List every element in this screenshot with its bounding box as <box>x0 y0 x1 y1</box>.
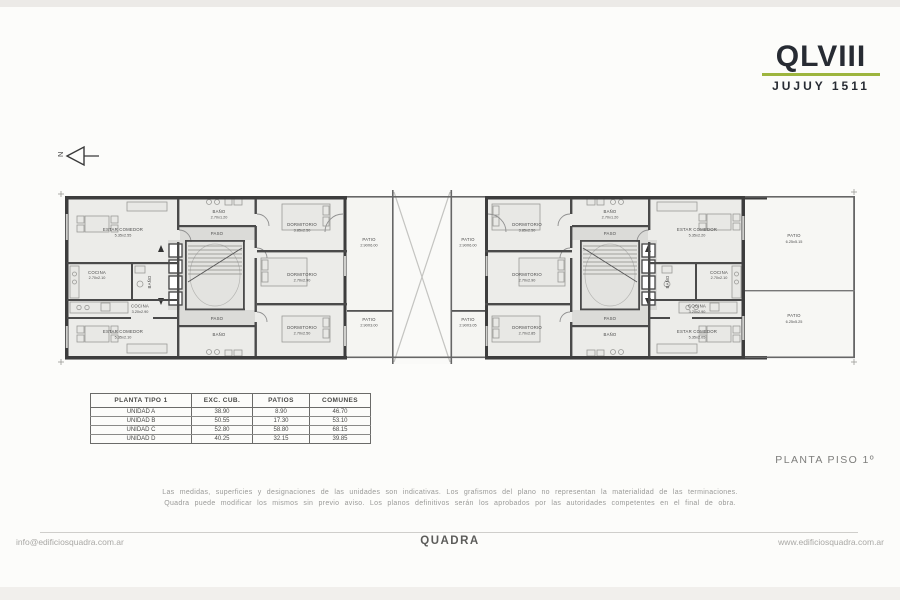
disclaimer: Las medidas, superficies y designaciones… <box>0 488 900 509</box>
room-dims: 3.85x2.50 <box>294 229 311 233</box>
patio-dims: 2.90X6.00 <box>360 244 377 248</box>
floor-plan-drawing: ESTAR COMEDOR 5.35x2.55 COCINA 2.70x2.10… <box>57 186 857 366</box>
table-row: UNIDAD C 52.80 58.80 68.15 <box>91 426 371 435</box>
table-row: UNIDAD A 38.90 8.90 46.70 <box>91 408 371 417</box>
unit-exc: 40.25 <box>192 435 253 444</box>
room-dims: 3.20x2.90 <box>132 310 149 314</box>
north-arrow: N <box>52 136 104 181</box>
table-header-comunes: COMUNES <box>310 394 371 408</box>
room-label-paso: PASO <box>604 231 617 236</box>
room-label-banio: BAÑO <box>213 209 226 214</box>
room-dims: 5.35x2.05 <box>689 336 706 340</box>
unit-patios: 32.15 <box>253 435 310 444</box>
unit-label: UNIDAD B <box>91 417 192 426</box>
unit-patios: 58.80 <box>253 426 310 435</box>
table-header-exc-cub: EXC. CUB. <box>192 394 253 408</box>
room-label-paso: PASO <box>211 231 224 236</box>
patio-dims: 6.25x5.25 <box>786 320 803 324</box>
room-dims: 2.70x2.50 <box>294 332 311 336</box>
room-label-paso: PASO <box>211 316 224 321</box>
room-dims: 5.35x2.55 <box>115 234 132 238</box>
unit-exc: 52.80 <box>192 426 253 435</box>
patio-dims: 6.25x5.15 <box>786 240 803 244</box>
logo-name: QLVIII <box>760 42 882 72</box>
north-label: N <box>56 152 65 157</box>
unit-exc: 38.90 <box>192 408 253 417</box>
logo: QLVIII JUJUY 1511 <box>760 42 882 93</box>
unit-patios: 8.90 <box>253 408 310 417</box>
patio-dims: 2.90X6.00 <box>459 244 476 248</box>
room-dims: 2.70x2.10 <box>89 276 106 280</box>
room-dims: 2.70x1.20 <box>602 216 619 220</box>
logo-subtitle: JUJUY 1511 <box>760 79 882 93</box>
north-arrow-icon: N <box>52 136 104 176</box>
room-dims: 2.70x2.90 <box>519 279 536 283</box>
room-label-banio: BAÑO <box>665 275 670 288</box>
room-label-dormitorio: DORMITORIO <box>287 222 317 227</box>
logo-underline <box>762 73 880 76</box>
patio-label: PATIO <box>787 233 801 238</box>
room-label-paso: PASO <box>604 316 617 321</box>
table-header-patios: PATIOS <box>253 394 310 408</box>
room-dims: 2.70x2.10 <box>711 276 728 280</box>
room-label-estar-comedor: ESTAR COMEDOR <box>677 329 717 334</box>
room-label-cocina: COCINA <box>131 304 149 309</box>
room-label-cocina: COCINA <box>88 270 106 275</box>
room-label-dormitorio: DORMITORIO <box>512 272 542 277</box>
unit-comunes: 68.15 <box>310 426 371 435</box>
room-dims: 5.35x2.20 <box>689 234 706 238</box>
room-label-cocina: COCINA <box>688 304 706 309</box>
areas-table: PLANTA TIPO 1 EXC. CUB. PATIOS COMUNES U… <box>90 393 371 444</box>
unit-label: UNIDAD D <box>91 435 192 444</box>
unit-comunes: 46.70 <box>310 408 371 417</box>
room-dims: 3.85x2.50 <box>519 229 536 233</box>
room-label-estar-comedor: ESTAR COMEDOR <box>103 329 143 334</box>
room-label-estar-comedor: ESTAR COMEDOR <box>677 227 717 232</box>
disclaimer-line-1: Las medidas, superficies y designaciones… <box>0 488 900 499</box>
room-dims: 2.70x1.20 <box>211 216 228 220</box>
unit-exc: 50.55 <box>192 417 253 426</box>
table-row: UNIDAD D 40.25 32.15 39.85 <box>91 435 371 444</box>
room-label-dormitorio: DORMITORIO <box>512 325 542 330</box>
table-header-planta-tipo: PLANTA TIPO 1 <box>91 394 192 408</box>
room-label-banio: BAÑO <box>604 209 617 214</box>
patio-dims: 2.90X3.05 <box>459 324 476 328</box>
room-label-dormitorio: DORMITORIO <box>512 222 542 227</box>
room-label-dormitorio: DORMITORIO <box>287 325 317 330</box>
unit-comunes: 39.85 <box>310 435 371 444</box>
disclaimer-line-2: Quadra puede modificar los mismos sin pr… <box>0 499 900 510</box>
room-dims: 3.20x2.90 <box>689 310 706 314</box>
footer-website: www.edificiosquadra.com.ar <box>778 537 884 547</box>
floor-plan: ESTAR COMEDOR 5.35x2.55 COCINA 2.70x2.10… <box>57 186 857 371</box>
footer-divider <box>40 532 858 533</box>
patio-label: PATIO <box>461 317 475 322</box>
patio-dims: 2.90X3.00 <box>360 324 377 328</box>
room-label-dormitorio: DORMITORIO <box>287 272 317 277</box>
footer-brand-logo: QUADRA <box>0 535 900 547</box>
room-label-banio: BAÑO <box>604 332 617 337</box>
unit-label: UNIDAD C <box>91 426 192 435</box>
patio-label: PATIO <box>362 317 376 322</box>
room-dims: 2.70x2.90 <box>294 279 311 283</box>
room-label-estar-comedor: ESTAR COMEDOR <box>103 227 143 232</box>
room-label-cocina: COCINA <box>710 270 728 275</box>
table-row: UNIDAD B 50.55 17.30 53.10 <box>91 417 371 426</box>
room-label-banio: BAÑO <box>213 332 226 337</box>
patio-label: PATIO <box>787 313 801 318</box>
unit-patios: 17.30 <box>253 417 310 426</box>
plan-title: PLANTA PISO 1º <box>775 454 875 466</box>
room-dims: 2.70x2.85 <box>519 332 536 336</box>
room-dims: 5.35x2.10 <box>115 336 132 340</box>
unit-comunes: 53.10 <box>310 417 371 426</box>
page-bottom-margin <box>0 587 900 600</box>
room-label-banio: BAÑO <box>147 275 152 288</box>
page-top-margin <box>0 0 900 7</box>
unit-label: UNIDAD A <box>91 408 192 417</box>
patio-label: PATIO <box>362 237 376 242</box>
patio-label: PATIO <box>461 237 475 242</box>
